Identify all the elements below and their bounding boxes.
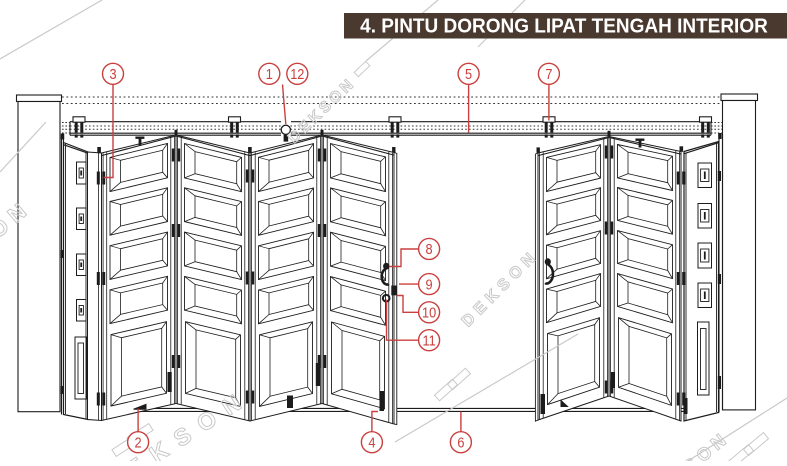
svg-text:5: 5 — [465, 66, 472, 82]
svg-text:4: 4 — [368, 435, 375, 451]
svg-text:3: 3 — [109, 66, 116, 82]
svg-text:12: 12 — [290, 66, 304, 82]
svg-text:8: 8 — [426, 241, 433, 257]
svg-text:1: 1 — [266, 66, 273, 82]
svg-text:2: 2 — [135, 435, 142, 451]
svg-text:4. PINTU DORONG LIPAT TENGAH I: 4. PINTU DORONG LIPAT TENGAH INTERIOR — [360, 15, 768, 38]
svg-text:11: 11 — [422, 333, 435, 349]
svg-text:6: 6 — [457, 435, 464, 451]
svg-text:10: 10 — [422, 305, 437, 321]
svg-text:7: 7 — [545, 66, 552, 82]
svg-text:9: 9 — [426, 277, 433, 293]
